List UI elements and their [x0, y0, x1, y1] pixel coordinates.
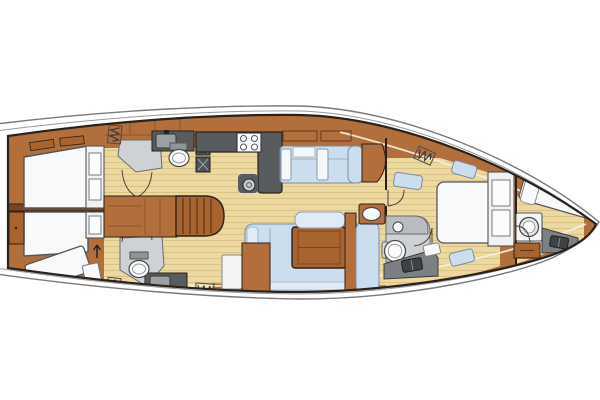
four-burner-stove — [237, 133, 261, 152]
yacht-floor-plan — [0, 0, 600, 400]
vanity-basin — [393, 222, 403, 232]
double-berth-port — [24, 146, 88, 208]
washbasin-mid — [363, 208, 381, 221]
cold-locker-icon — [196, 157, 210, 172]
companionway — [104, 196, 224, 237]
armrest — [317, 149, 328, 180]
faucet — [164, 130, 169, 134]
drawer — [89, 216, 101, 234]
drawer — [492, 180, 510, 206]
vanity-counter — [386, 216, 428, 234]
back-cushion — [293, 147, 315, 157]
drawer — [89, 153, 101, 175]
armrest — [281, 149, 291, 180]
bench-side-cabinet — [345, 213, 356, 297]
washer-drum — [523, 221, 535, 233]
door-panel — [222, 255, 242, 289]
cistern — [130, 252, 148, 259]
mid-cabinets — [104, 196, 177, 237]
owner-island-bed — [437, 182, 496, 243]
galley-round-sink — [243, 179, 255, 191]
drawer — [89, 179, 101, 200]
locker-knob — [15, 227, 17, 229]
settee-end — [348, 146, 363, 183]
chaise-bench — [356, 221, 379, 295]
dinette-backrest — [295, 212, 345, 228]
drawer — [492, 210, 510, 236]
floor-plan-canvas — [0, 0, 600, 400]
